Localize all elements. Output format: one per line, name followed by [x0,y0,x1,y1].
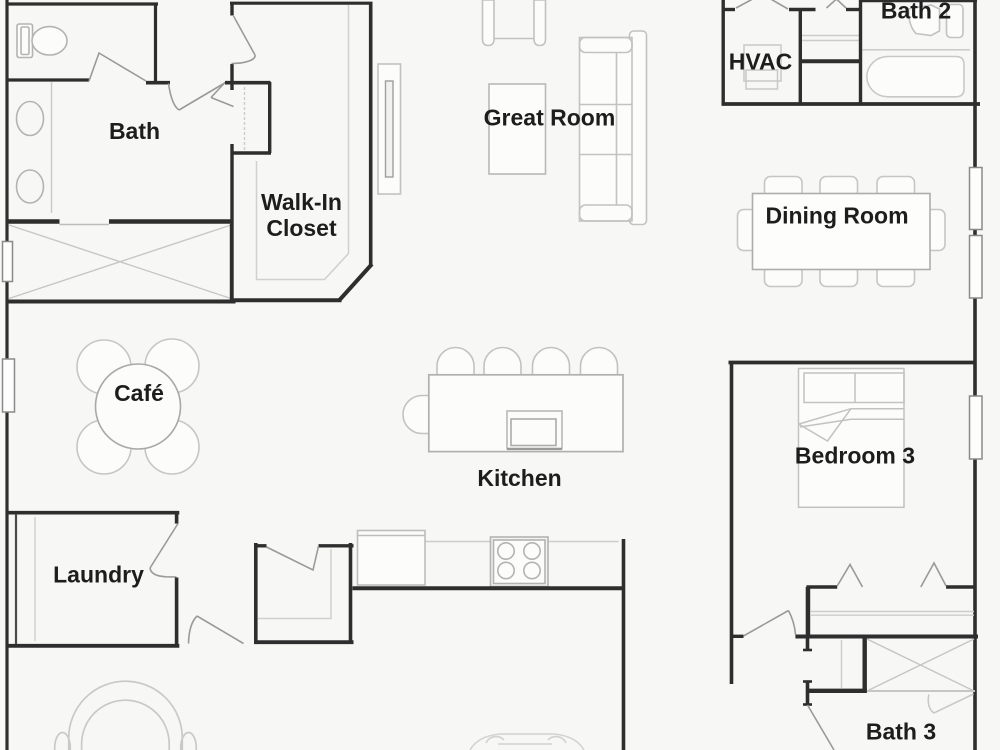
svg-text:Laundry: Laundry [53,562,144,588]
svg-text:Kitchen: Kitchen [477,465,561,491]
svg-text:HVAC: HVAC [729,49,792,75]
svg-text:Great Room: Great Room [484,105,616,131]
svg-text:Walk-In: Walk-In [261,189,342,215]
svg-text:Bath: Bath [109,118,160,144]
svg-text:Bath 3: Bath 3 [866,719,936,745]
svg-text:Café: Café [114,380,164,406]
svg-text:Dining Room: Dining Room [765,203,908,229]
svg-text:Bath 2: Bath 2 [881,0,951,24]
svg-text:Bedroom 3: Bedroom 3 [795,443,915,469]
svg-text:Closet: Closet [266,215,337,241]
